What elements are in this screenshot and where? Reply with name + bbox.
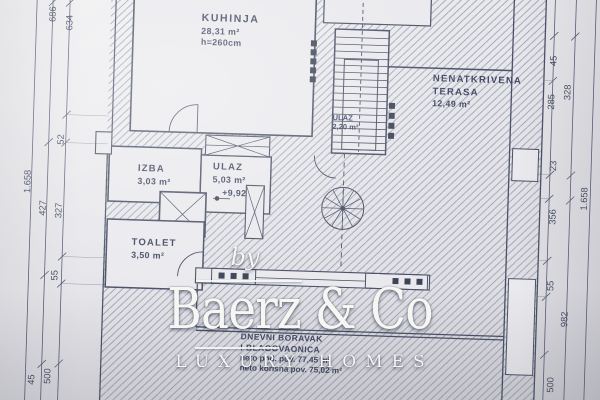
floorplan-photo: KUHINJA 28,31 m² h=260cm NENATKRIVENA TE… — [0, 0, 600, 400]
skylight-opening — [324, 0, 432, 26]
svg-text:327: 327 — [53, 203, 63, 219]
svg-text:ULAZ: ULAZ — [213, 161, 243, 173]
ulaz-window — [205, 135, 270, 157]
floorplan-drawing: KUHINJA 28,31 m² h=260cm NENATKRIVENA TE… — [0, 0, 600, 400]
svg-text:23: 23 — [548, 161, 558, 172]
svg-text:356: 356 — [547, 209, 557, 225]
svg-text:55: 55 — [49, 270, 59, 281]
svg-text:12,49 m²: 12,49 m² — [432, 98, 471, 109]
right-wall-window-2 — [506, 279, 536, 376]
svg-text:3,50 m²: 3,50 m² — [131, 250, 164, 261]
wall-notch — [95, 132, 112, 154]
svg-text:1.658: 1.658 — [22, 170, 33, 194]
svg-text:427: 427 — [37, 200, 47, 216]
svg-text:TOALET: TOALET — [131, 237, 176, 249]
dimension-labels-left: 686 634 52 1.658 427 327 55 45 500 — [16, 6, 75, 386]
svg-text:+9,92: +9,92 — [222, 188, 247, 199]
svg-text:3,03 m²: 3,03 m² — [137, 176, 170, 187]
svg-text:KUHINJA: KUHINJA — [201, 12, 259, 26]
svg-text:28,31 m²: 28,31 m² — [201, 26, 240, 37]
svg-text:5,03 m²: 5,03 m² — [212, 174, 245, 185]
svg-text:982: 982 — [559, 311, 569, 327]
svg-text:h=260cm: h=260cm — [201, 37, 242, 48]
svg-text:634: 634 — [64, 15, 74, 31]
glazed-panel — [245, 185, 265, 239]
plan-rotated-group: KUHINJA 28,31 m² h=260cm NENATKRIVENA TE… — [15, 0, 597, 400]
svg-text:52: 52 — [56, 134, 66, 145]
svg-text:686: 686 — [47, 6, 57, 22]
svg-text:45: 45 — [548, 56, 558, 67]
svg-text:1.658: 1.658 — [579, 187, 590, 211]
svg-text:IZBA: IZBA — [138, 163, 165, 175]
svg-text:2,20 m²: 2,20 m² — [332, 122, 359, 132]
svg-text:TERASA: TERASA — [432, 86, 479, 98]
svg-text:500: 500 — [545, 377, 555, 393]
svg-text:55: 55 — [545, 281, 555, 292]
svg-text:328: 328 — [562, 84, 572, 100]
svg-text:285: 285 — [546, 94, 556, 110]
right-wall-window-1 — [512, 149, 539, 182]
svg-text:500: 500 — [42, 368, 52, 384]
svg-text:45: 45 — [26, 374, 36, 385]
